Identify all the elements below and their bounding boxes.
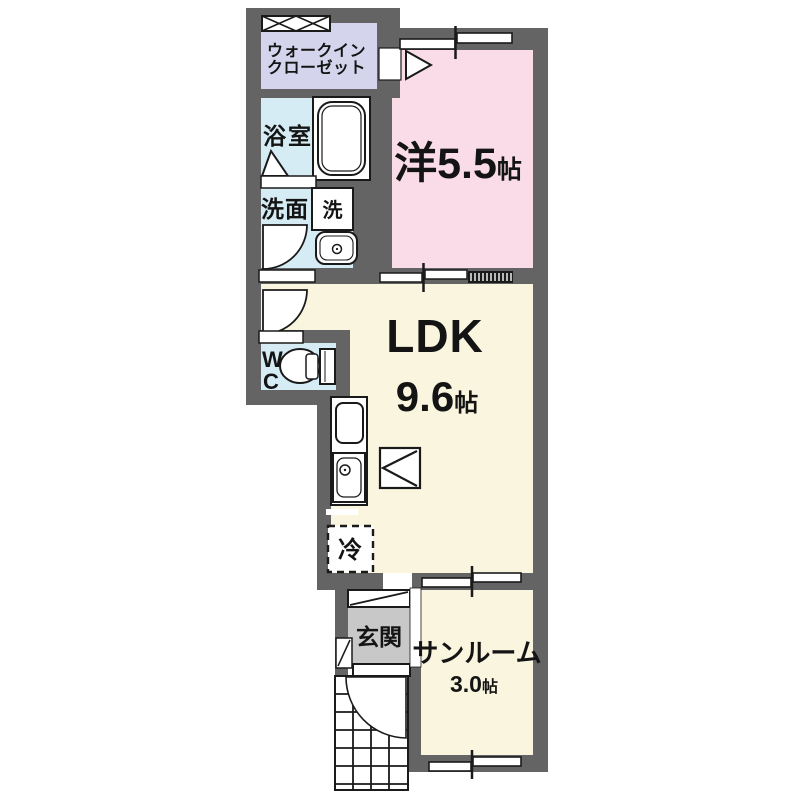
western-room-unit: 帖: [497, 156, 522, 184]
washroom-label: 洗面: [261, 196, 309, 222]
closet-door-opening: [379, 48, 401, 80]
floor-plan-drawing: ウォークイン クローゼット 浴室 洗面 洗 洋5.5帖 LDK 9.6帖 W C…: [0, 0, 800, 800]
sunroom-label: サンルーム: [412, 638, 541, 668]
walk-in-closet-label-line2: クローゼット: [267, 58, 366, 77]
washroom-sink-icon: [316, 232, 357, 264]
kitchen-counter-icon: [331, 397, 367, 505]
ldk-label: LDK: [386, 310, 484, 362]
ldk-size: 9.6: [396, 373, 454, 420]
sunroom-size: 3.0: [450, 671, 482, 697]
refrigerator-label: 冷: [338, 536, 362, 564]
entrance-opening: [383, 573, 412, 590]
floor-plan-page: ウォークイン クローゼット 浴室 洗面 洗 洋5.5帖 LDK 9.6帖 W C…: [0, 0, 800, 800]
entrance-side-panel-icon: [336, 638, 352, 668]
shoe-cabinet-icon: [348, 590, 410, 607]
ldk-equipment-icon: [380, 448, 420, 488]
wc-door-threshold: [259, 331, 303, 343]
bathroom-label: 浴室: [263, 123, 313, 149]
western-room-size: 洋5.5: [394, 140, 497, 188]
walk-in-closet-label-line1: ウォークイン: [267, 42, 366, 60]
entrance-door-bar: [353, 664, 410, 676]
kitchen-wall-slit: [326, 509, 358, 515]
wall-bath-right: [370, 98, 392, 188]
wall-left: [246, 8, 261, 405]
entrance-label: 玄関: [356, 624, 402, 650]
bathtub-icon: [313, 97, 370, 180]
sunroom-unit: 帖: [482, 677, 498, 696]
closet-door-icon: [262, 16, 330, 31]
bath-door-threshold: [261, 176, 316, 188]
washroom-door-threshold: [259, 270, 315, 282]
washer-label: 洗: [323, 199, 343, 222]
toilet-icon: [280, 349, 335, 384]
ldk-unit: 帖: [454, 390, 478, 417]
wc-label-line2: C: [263, 369, 279, 394]
porch-tiles: [335, 676, 408, 790]
